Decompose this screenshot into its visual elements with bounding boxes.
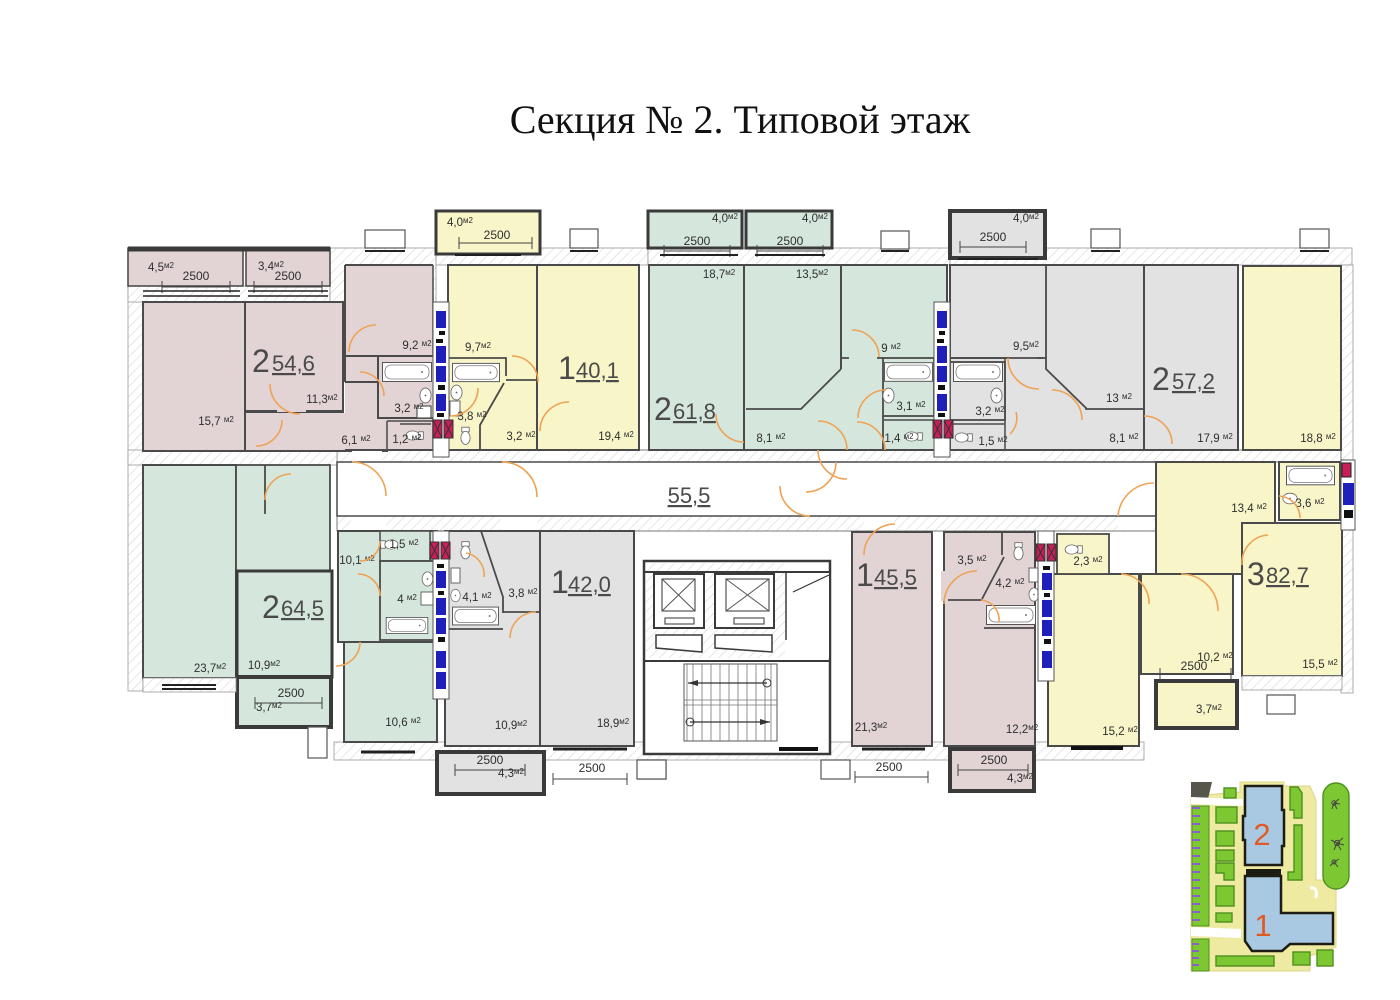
svg-text:2500: 2500	[183, 269, 210, 283]
svg-text:61,8: 61,8	[673, 399, 716, 424]
svg-text:64,5: 64,5	[281, 596, 324, 621]
svg-text:2500: 2500	[1181, 659, 1208, 673]
svg-text:82,7: 82,7	[1266, 563, 1309, 588]
svg-text:54,6: 54,6	[272, 351, 315, 376]
svg-text:2: 2	[262, 589, 280, 625]
svg-text:2500: 2500	[876, 760, 903, 774]
svg-text:2: 2	[654, 391, 672, 427]
svg-text:1: 1	[551, 564, 569, 600]
svg-text:57,2: 57,2	[1172, 369, 1215, 394]
svg-text:2: 2	[1152, 361, 1170, 397]
svg-text:2500: 2500	[980, 230, 1007, 244]
svg-text:1: 1	[558, 350, 576, 386]
svg-text:2500: 2500	[579, 761, 606, 775]
svg-text:1: 1	[1254, 908, 1271, 943]
svg-text:42,0: 42,0	[568, 572, 611, 597]
svg-text:2500: 2500	[777, 234, 804, 248]
svg-text:2500: 2500	[477, 753, 504, 767]
svg-text:2500: 2500	[684, 234, 711, 248]
svg-text:2500: 2500	[275, 269, 302, 283]
svg-text:2: 2	[252, 343, 270, 379]
svg-text:55,5: 55,5	[668, 483, 711, 508]
svg-text:2500: 2500	[981, 753, 1008, 767]
svg-text:1: 1	[856, 557, 874, 593]
svg-text:40,1: 40,1	[576, 358, 619, 383]
svg-text:2500: 2500	[484, 228, 511, 242]
svg-text:2500: 2500	[278, 686, 305, 700]
svg-text:2: 2	[1253, 817, 1270, 852]
svg-text:Секция № 2. Типовой этаж: Секция № 2. Типовой этаж	[510, 97, 971, 142]
svg-text:45,5: 45,5	[874, 565, 917, 590]
svg-text:3: 3	[1247, 556, 1265, 592]
